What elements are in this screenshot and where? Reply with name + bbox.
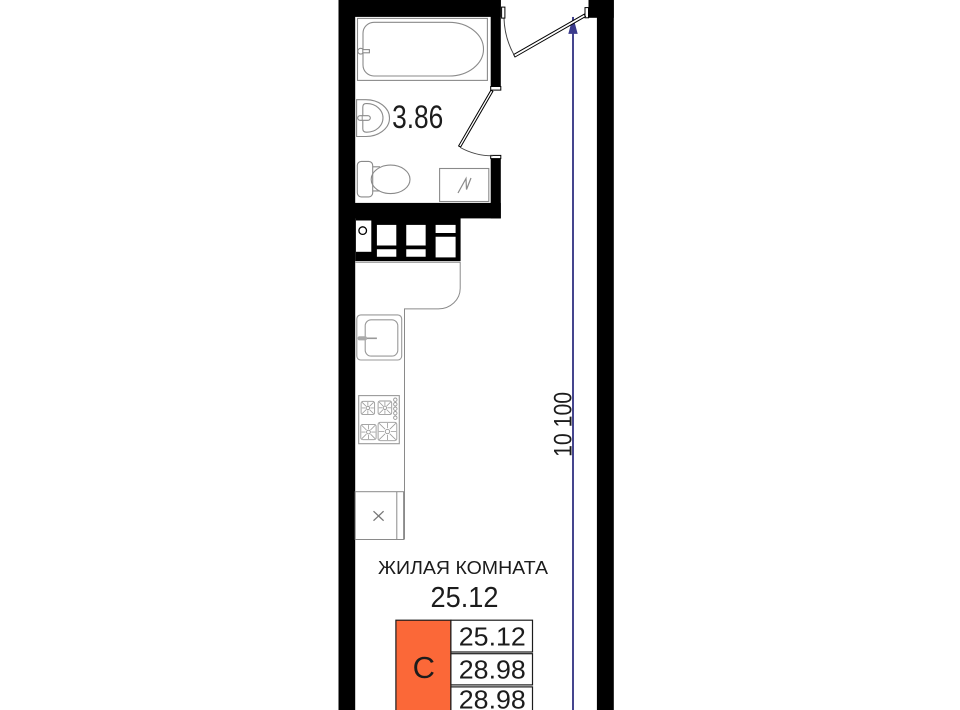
svg-text:С: С (413, 650, 435, 685)
svg-text:25.12: 25.12 (459, 622, 526, 652)
svg-text:10 100: 10 100 (550, 392, 578, 457)
svg-text:25.12: 25.12 (431, 582, 499, 614)
svg-text:28.98: 28.98 (459, 685, 526, 710)
svg-text:3.86: 3.86 (392, 99, 443, 135)
svg-text:28.98: 28.98 (459, 655, 526, 685)
svg-text:ЖИЛАЯ КОМНАТА: ЖИЛАЯ КОМНАТА (378, 558, 548, 578)
